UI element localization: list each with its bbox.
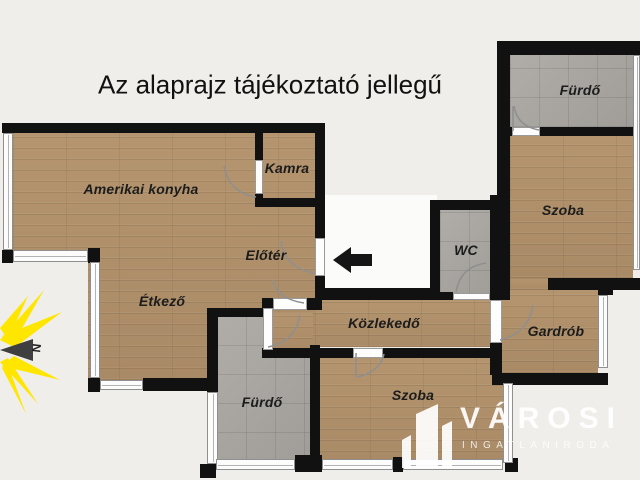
watermark: VÁROSI INGATLANIRODA [398, 396, 636, 472]
watermark-tagline: INGATLANIRODA [462, 440, 614, 451]
disclaimer-title: Az alaprajz tájékoztató jellegű [98, 70, 442, 101]
room-label-bath-top: Fürdő [560, 82, 601, 98]
room-label-wc: WC [454, 242, 478, 258]
sun-icon [0, 288, 66, 418]
room-label-entry-hall: Előtér [246, 247, 287, 263]
room-label-bath-bottom: Fürdő [242, 394, 283, 410]
watermark-brand: VÁROSI [460, 402, 623, 436]
floor-plan-canvas: N Amerikai konyha Kamra Előtér Étkező Kö… [0, 0, 640, 480]
room-label-kitchen: Amerikai konyha [83, 181, 198, 197]
north-label: N [29, 343, 44, 353]
room-label-pantry: Kamra [265, 160, 310, 176]
room-label-corridor: Közlekedő [348, 315, 420, 331]
room-label-wardrobe: Gardrób [528, 323, 585, 339]
room-label-room-right: Szoba [542, 202, 584, 218]
room-label-dining: Étkező [139, 293, 185, 309]
varosi-logo-icon [402, 402, 456, 468]
entrance-arrow-icon [333, 247, 373, 274]
